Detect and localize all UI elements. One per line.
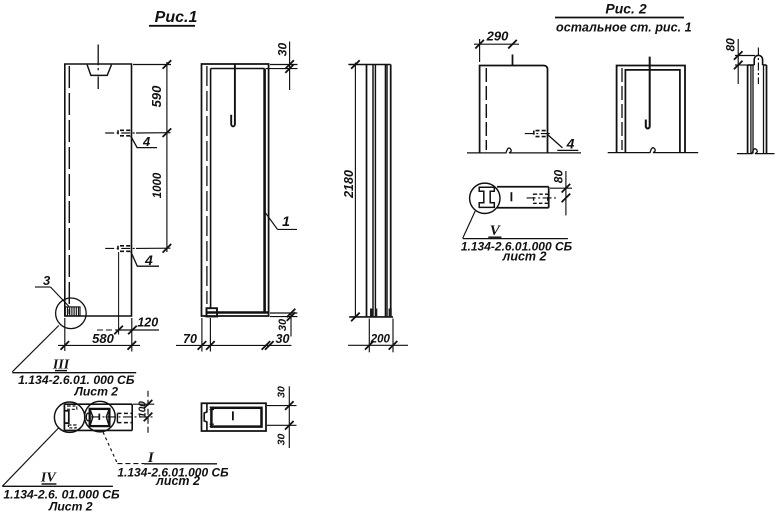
svg-text:80: 80	[552, 170, 566, 184]
svg-text:1: 1	[282, 213, 290, 229]
svg-text:30: 30	[276, 332, 290, 346]
svg-text:лист 2: лист 2	[502, 250, 547, 264]
svg-text:70: 70	[183, 332, 197, 346]
svg-text:100: 100	[138, 401, 149, 418]
svg-text:1000: 1000	[152, 172, 164, 198]
svg-text:остальное ст. рис. 1: остальное ст. рис. 1	[556, 21, 692, 35]
svg-text:30: 30	[276, 386, 288, 398]
svg-text:2180: 2180	[342, 170, 356, 199]
svg-text:Рис.1: Рис.1	[155, 9, 198, 26]
svg-text:30: 30	[276, 434, 288, 446]
svg-text:3: 3	[43, 273, 51, 288]
svg-text:4: 4	[144, 252, 153, 268]
svg-text:120: 120	[137, 315, 158, 329]
svg-text:30: 30	[277, 318, 289, 331]
svg-text:580: 580	[92, 331, 114, 346]
svg-text:Лист 2: Лист 2	[48, 499, 93, 513]
svg-text:80: 80	[724, 38, 738, 52]
svg-text:4: 4	[142, 134, 151, 149]
svg-text:590: 590	[149, 85, 164, 107]
svg-text:290: 290	[486, 29, 509, 44]
svg-text:IV: IV	[40, 471, 57, 486]
svg-text:Рис. 2: Рис. 2	[605, 1, 646, 17]
svg-text:200: 200	[370, 333, 391, 345]
svg-text:Лист 2: Лист 2	[73, 384, 118, 398]
svg-text:4: 4	[566, 136, 575, 152]
svg-text:30: 30	[276, 43, 290, 57]
svg-text:лист 2: лист 2	[155, 474, 200, 488]
